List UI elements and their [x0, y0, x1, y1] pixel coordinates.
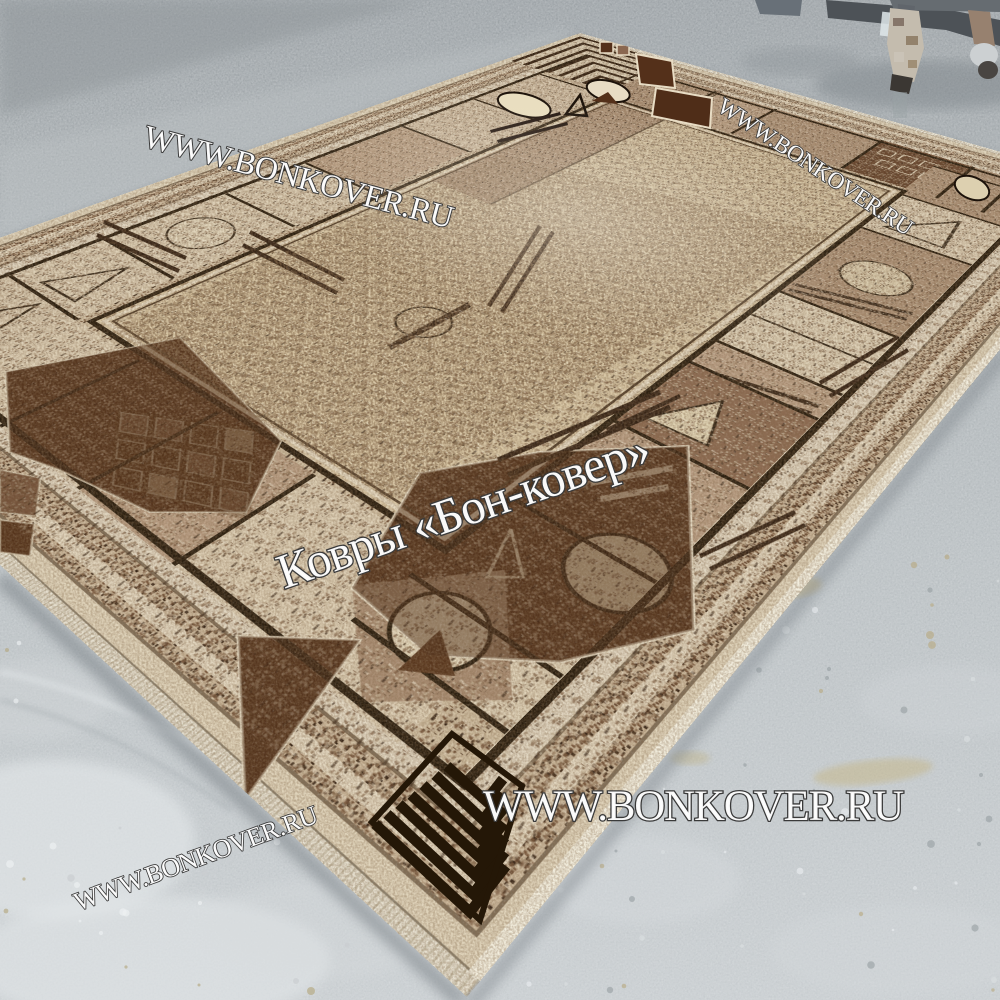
svg-text:WWW.BONKOVER.RU: WWW.BONKOVER.RU [483, 783, 904, 830]
svg-text:WWW.BONKOVER.RU: WWW.BONKOVER.RU [713, 93, 918, 240]
svg-text:Ковры «Бон-ковер»: Ковры «Бон-ковер» [270, 421, 656, 600]
svg-text:WWW.BONKOVER.RU: WWW.BONKOVER.RU [70, 800, 322, 917]
svg-text:WWW.BONKOVER.RU: WWW.BONKOVER.RU [140, 118, 457, 235]
